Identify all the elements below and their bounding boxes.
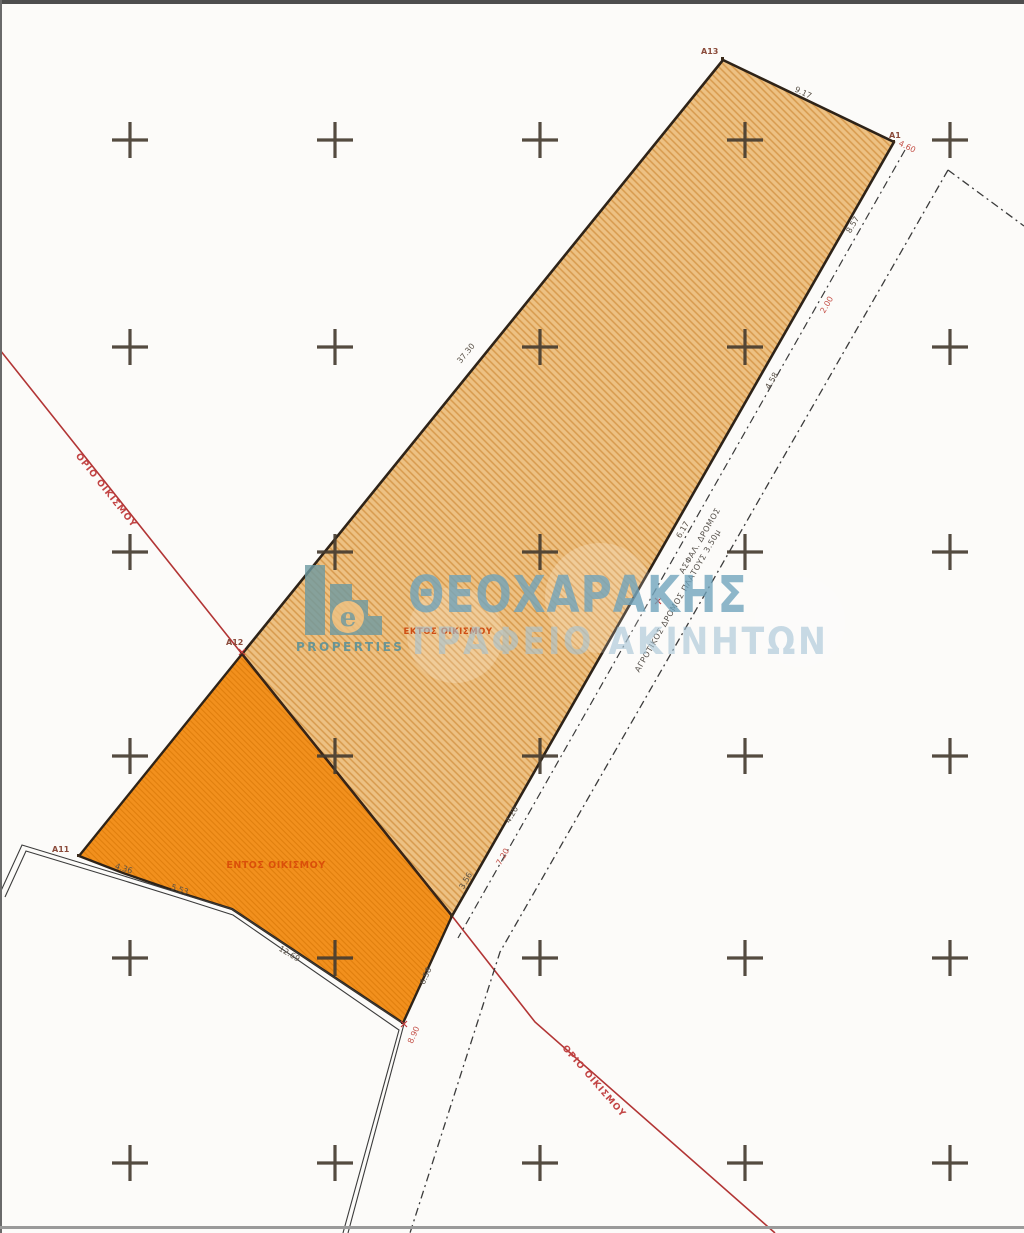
grid-cross <box>522 1145 558 1181</box>
grid-cross <box>112 329 148 365</box>
site-plan-canvas: Α13 Α1 Α12 Α11 9.17 8.57 2.00 4.58 6.17 … <box>0 0 1024 1233</box>
grid-cross <box>112 1145 148 1181</box>
grid-cross <box>932 122 968 158</box>
grid-cross <box>727 1145 763 1181</box>
grid-cross <box>317 122 353 158</box>
vertex-label-a11: Α11 <box>52 845 70 854</box>
grid-cross <box>727 534 763 570</box>
grid-cross <box>932 940 968 976</box>
grid-cross <box>932 534 968 570</box>
vertex-label-a13: Α13 <box>701 47 718 56</box>
dimension-label: 8.90 <box>406 1025 421 1045</box>
grid-cross <box>932 1145 968 1181</box>
grid-cross <box>112 122 148 158</box>
grid-cross <box>112 940 148 976</box>
survey-drawing: Α13 Α1 Α12 Α11 9.17 8.57 2.00 4.58 6.17 … <box>0 0 1024 1233</box>
grid-cross <box>317 329 353 365</box>
grid-cross <box>932 329 968 365</box>
grid-cross <box>932 738 968 774</box>
frame-border-top <box>0 0 1024 4</box>
dimension-label: 37.30 <box>455 342 476 365</box>
vertex-label-a12: Α12 <box>226 638 243 647</box>
dimension-label: 4.60 <box>897 139 917 155</box>
grid-cross <box>112 738 148 774</box>
frame-border-bottom <box>0 1226 1024 1229</box>
zone-label-outside-settlement: ΕΚΤΟΣ ΟΙΚΙΣΜΟΥ <box>404 627 493 637</box>
settlement-boundary-label-lower: ΟΡΙΟ ΟΙΚΙΣΜΟΥ <box>560 1044 628 1120</box>
frame-border-left <box>0 0 2 1233</box>
grid-cross <box>522 940 558 976</box>
settlement-boundary-label-upper: ΟΡΙΟ ΟΙΚΙΣΜΟΥ <box>73 452 138 530</box>
grid-cross <box>522 122 558 158</box>
neighbor-fence-line <box>948 170 1024 226</box>
grid-cross <box>317 1145 353 1181</box>
grid-cross <box>727 738 763 774</box>
grid-cross <box>112 534 148 570</box>
grid-cross <box>727 940 763 976</box>
vertex-label-a1: Α1 <box>889 131 901 140</box>
zone-label-inside-settlement: ΕΝΤΟΣ ΟΙΚΙΣΜΟΥ <box>226 860 325 871</box>
